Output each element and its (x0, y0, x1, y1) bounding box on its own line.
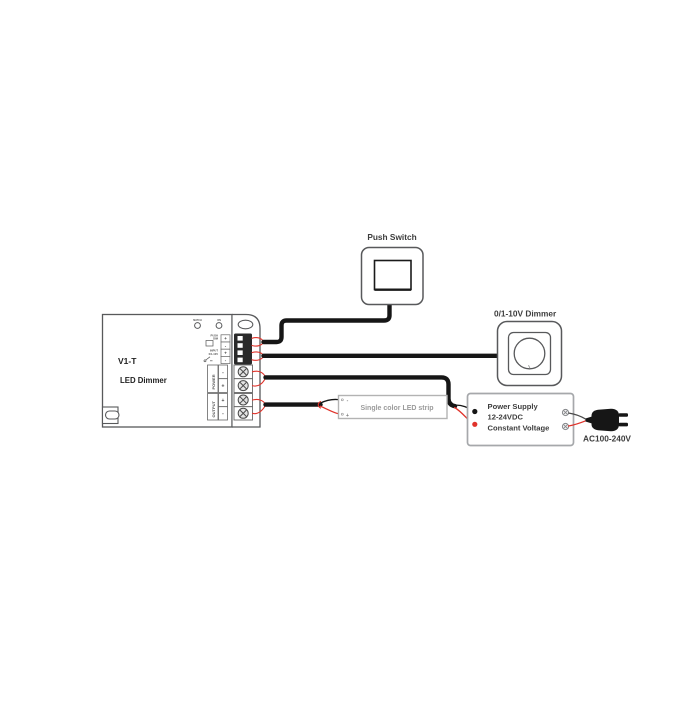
screw-icon (238, 395, 248, 405)
on-indicator (216, 323, 222, 329)
mains-voltage-label: AC100-240V (583, 434, 631, 444)
led-strip-label: Single color LED strip (360, 405, 433, 412)
output-label: OUTPUT (211, 401, 216, 418)
signal-connector: + - + - (221, 335, 230, 364)
power-mark-pos: + (222, 384, 225, 390)
controller-model: V1-T (118, 356, 137, 366)
power-label: POWER (211, 374, 216, 389)
psu-ac-terminal (562, 409, 568, 415)
signal-mark-1: + (224, 336, 227, 341)
output-mark-pos: + (222, 398, 225, 404)
push-switch-rocker (375, 261, 412, 290)
power-supply: Power Supply 12-24VDC Constant Voltage (468, 394, 587, 446)
screw-icon (238, 367, 248, 377)
screw-icon (238, 381, 248, 391)
analog-dimmer-label: 0/1-10V Dimmer (494, 309, 557, 319)
psu-line2: 12-24VDC (488, 413, 524, 422)
push-switch-label: Push Switch (367, 232, 416, 242)
led-strip: Single color LED strip - + (339, 396, 448, 420)
screw-icon (238, 408, 248, 418)
match-button-label: MATCH (193, 319, 202, 322)
input-label-line2: 0/1-10V (209, 352, 219, 356)
strip-positive-mark: + (346, 413, 349, 419)
plug-prong-bottom (619, 423, 629, 427)
psu-dc-negative-dot (472, 409, 477, 414)
controller-name: LED Dimmer (120, 376, 167, 385)
mounting-tab-slot (106, 411, 120, 419)
signal-mark-3: + (224, 351, 227, 356)
signal-terminal-block (234, 334, 252, 365)
psu-line3: Constant Voltage (488, 423, 550, 432)
controller-unit: MATCH ON V1-T LED Dimmer PUSH DIM INPUT … (103, 315, 266, 428)
match-button (195, 323, 201, 329)
plug-body-icon (592, 409, 620, 431)
wiring-diagram: MATCH ON V1-T LED Dimmer PUSH DIM INPUT … (0, 0, 700, 700)
psu-line1: Power Supply (488, 402, 539, 411)
dimmer-knob (514, 338, 545, 369)
mounting-hole (238, 320, 253, 329)
plug-prong-top (619, 413, 629, 417)
psu-ac-terminal (562, 423, 568, 429)
screw-terminals (234, 365, 253, 420)
on-indicator-label: ON (217, 319, 221, 322)
push-dim-label-line2: DIM (213, 337, 219, 341)
power-output-polarity: - + + - (219, 365, 228, 420)
psu-dc-positive-dot (472, 422, 477, 427)
